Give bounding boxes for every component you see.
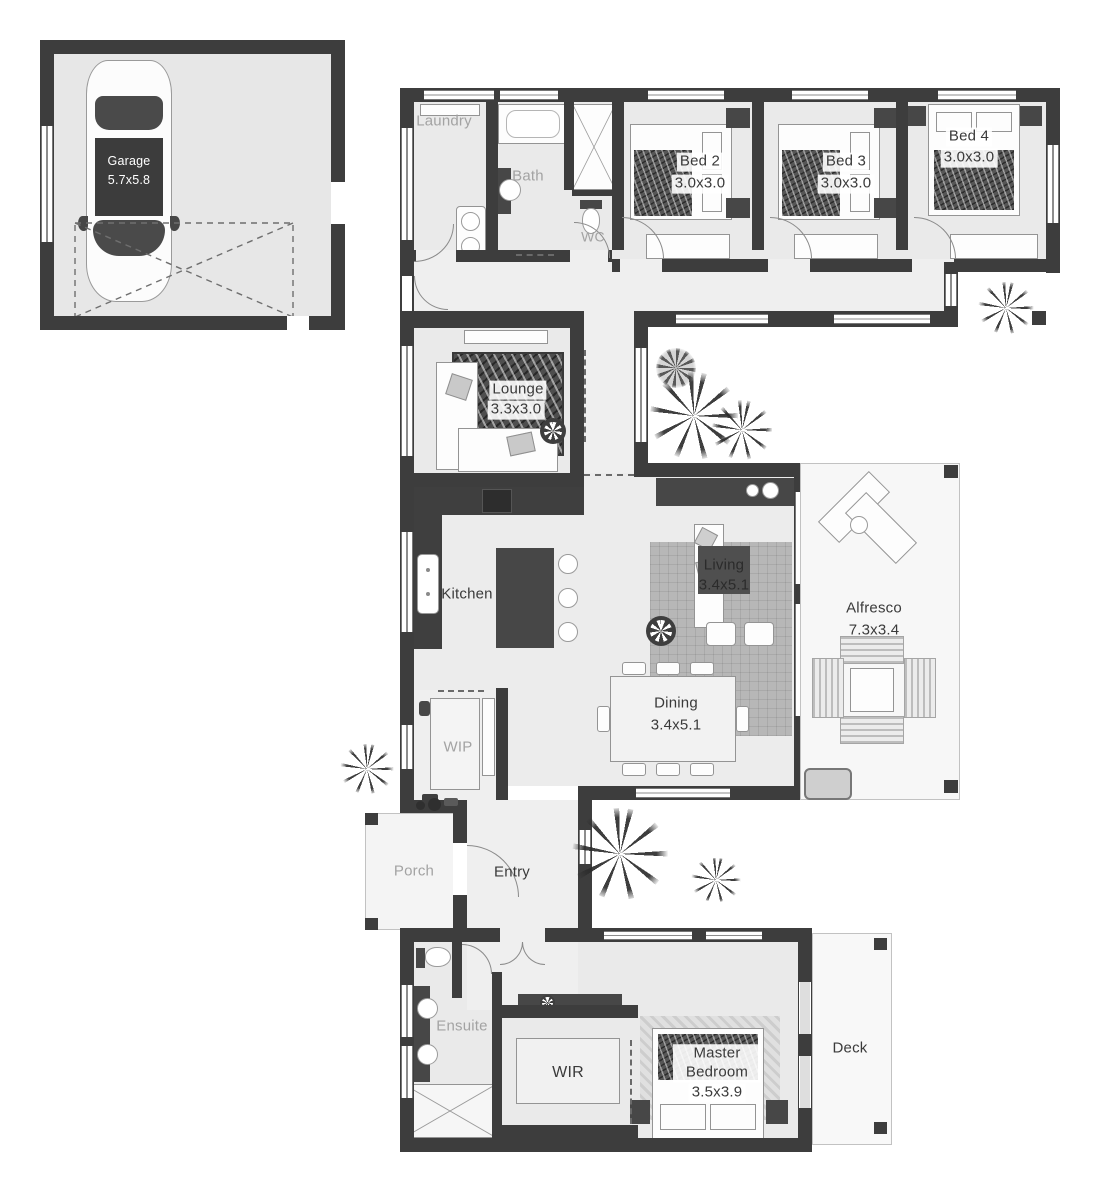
- ensuite-basin-1: [417, 998, 438, 1019]
- courtyard-post: [1032, 311, 1046, 325]
- laundry-label: Laundry: [416, 113, 472, 132]
- dining-chair-bottom-2: [656, 763, 680, 776]
- master-wall-west: [400, 928, 414, 1152]
- living-plant-icon: [646, 616, 676, 646]
- shower-x-icon: [573, 105, 615, 189]
- bed4-window-top: [938, 90, 1016, 100]
- ensuite-label: Ensuite: [436, 1018, 487, 1037]
- bathtub-inner: [506, 110, 560, 138]
- island-stool-2: [558, 588, 578, 608]
- entry-label: Entry: [494, 864, 530, 883]
- dining-chair-bottom-1: [622, 763, 646, 776]
- parking-bay-dashed-outline: [74, 222, 294, 318]
- garage-label: Garage: [108, 154, 151, 170]
- hallway-side-door-opening: [402, 276, 412, 312]
- tractor-trailer: [444, 798, 458, 806]
- ensuite-window-west-2: [401, 1046, 413, 1098]
- alfresco-chair-left: [812, 658, 844, 718]
- dining-chair-top-2: [656, 662, 680, 675]
- alfresco-chair-right: [904, 658, 936, 718]
- alfresco-post-se: [944, 780, 958, 793]
- lounge-kitchen-wall: [400, 473, 584, 487]
- vacuum-icon: [419, 701, 430, 716]
- bed2-door-opening: [620, 259, 662, 272]
- wir-robe-dashed: [630, 1040, 632, 1124]
- master-wall-north-2: [545, 928, 592, 942]
- ensuite-shower: [404, 1084, 496, 1138]
- deck-post-se: [874, 1122, 887, 1134]
- master-wall-south: [400, 1138, 812, 1152]
- ensuite-window-west-1: [401, 985, 413, 1037]
- bed2-bed3-divider: [752, 102, 764, 250]
- master-side-table-2: [766, 1100, 788, 1124]
- laundry-bath-divider: [486, 102, 498, 250]
- palm-plant-icon-east: [978, 282, 1034, 334]
- kitchen-sink-icon: [417, 554, 439, 614]
- porch-post-sw: [365, 918, 378, 930]
- lounge-wall-top: [400, 311, 584, 328]
- lounge-window-left: [401, 346, 413, 456]
- kitchen-island: [496, 548, 554, 648]
- bedrooms-wall-bottom: [612, 259, 1060, 272]
- island-stool-1: [558, 554, 578, 574]
- garage-wall-top: [40, 40, 345, 54]
- tractor-wheel-small: [416, 801, 425, 810]
- palm-plant-icon-courtyard-2: [712, 400, 772, 460]
- toy-tractor-icon: [414, 792, 460, 812]
- bed2-side-table-2: [726, 198, 750, 218]
- kitchen-window-west: [401, 532, 413, 632]
- island-stool-3: [558, 622, 578, 642]
- bed4-side-table-2: [1020, 106, 1042, 126]
- laundry-window-top: [424, 90, 494, 100]
- deck-label: Deck: [833, 1040, 868, 1059]
- tractor-wheel-big: [428, 798, 441, 811]
- ensuite-wc-divider: [452, 942, 462, 998]
- bed3-side-table-1: [874, 108, 898, 128]
- alfresco-post-ne: [944, 465, 958, 478]
- garage-dims: 5.7x5.8: [108, 173, 150, 189]
- passage-floor: [584, 311, 634, 476]
- sink-tap-dot-1: [426, 568, 430, 572]
- tv-unit-decor-1: [746, 484, 759, 497]
- porch-post-nw: [365, 813, 378, 825]
- bed3-dims: 3.0x3.0: [818, 175, 875, 194]
- passage-opening-dashed: [584, 474, 634, 476]
- bath-opening-dashed: [516, 254, 554, 256]
- wc-label: WC: [581, 228, 605, 246]
- deck-sliding-door-1: [799, 982, 811, 1034]
- cooktop-icon: [482, 489, 512, 513]
- ensuite-shower-x-icon: [405, 1085, 495, 1137]
- bath-window-top: [500, 90, 558, 100]
- hallway-window-south-1: [676, 314, 768, 324]
- garage-door-opening: [331, 182, 345, 224]
- alfresco-dims: 7.3x3.4: [849, 622, 900, 641]
- garage-wall-bottom-opening: [287, 316, 309, 330]
- porch-label: Porch: [394, 863, 434, 882]
- bed3-label: Bed 3: [823, 153, 869, 172]
- lounge-label: Lounge: [489, 381, 546, 400]
- living-wall-top: [634, 463, 794, 477]
- tv-unit-decor-2: [762, 482, 779, 499]
- bed4-dims: 3.0x3.0: [941, 149, 998, 168]
- ensuite-hall-divider: [492, 972, 502, 1138]
- washer-drum-icon: [461, 212, 480, 231]
- wir-wall-south: [502, 1125, 638, 1138]
- dining-dims: 3.4x5.1: [651, 717, 702, 736]
- ensuite-basin-2: [417, 1044, 438, 1065]
- master-side-table-1: [630, 1100, 650, 1124]
- front-door-opening: [453, 843, 467, 895]
- dining-chair-top-1: [622, 662, 646, 675]
- bed4-robe: [950, 234, 1038, 259]
- master-label: Master Bedroom: [673, 1044, 761, 1082]
- master-pillow-1: [660, 1104, 706, 1130]
- dining-chair-bottom-3: [690, 763, 714, 776]
- ensuite-cistern: [416, 948, 425, 968]
- passage-window-east: [635, 348, 647, 442]
- bed4-window-right: [1047, 145, 1059, 223]
- floor-plan: Garage 5.7x5.8: [0, 0, 1114, 1200]
- bath-label: Bath: [512, 168, 544, 187]
- alfresco-label: Alfresco: [846, 600, 902, 619]
- bed2-window-top: [648, 90, 724, 100]
- master-pillow-2: [710, 1104, 756, 1130]
- dining-window-south: [636, 788, 730, 798]
- bed2-label: Bed 2: [677, 153, 723, 172]
- dining-chair-left: [597, 706, 610, 732]
- bed3-window-top: [792, 90, 868, 100]
- master-wall-east: [798, 928, 812, 1152]
- laundry-window-left: [401, 128, 413, 240]
- wip-shelf: [482, 698, 495, 776]
- deck-sliding-door-2: [799, 1056, 811, 1108]
- car-rear-window: [95, 96, 163, 130]
- master-wall-north-1: [400, 928, 500, 942]
- living-label: Living: [704, 557, 744, 576]
- bed3-side-table-2: [874, 198, 898, 218]
- bath-shower-divider: [564, 102, 574, 190]
- garage-window-left: [41, 126, 53, 242]
- alfresco-table: [850, 668, 894, 712]
- hallway-window-south-2: [834, 314, 930, 324]
- kitchen-label: Kitchen: [441, 586, 492, 605]
- living-dims: 3.4x5.1: [699, 577, 750, 596]
- dining-chair-top-3: [690, 662, 714, 675]
- living-armchair-1: [706, 622, 736, 646]
- palm-plant-icon-entry-1: [572, 808, 668, 900]
- lounge-console: [464, 330, 548, 344]
- bbq-icon: [804, 768, 852, 800]
- bed3-door-opening: [768, 259, 810, 272]
- wir-wall-north: [502, 1005, 638, 1018]
- deck-post-ne: [874, 938, 887, 950]
- dining-chair-right: [736, 706, 749, 732]
- bed2-dims: 3.0x3.0: [672, 175, 729, 194]
- wip-wall-east: [496, 688, 508, 814]
- lounge-dims: 3.3x3.0: [488, 401, 545, 420]
- dining-label: Dining: [654, 695, 698, 714]
- hallway-end-window: [945, 274, 957, 306]
- lounge-wall-right: [570, 311, 584, 476]
- bed4-label: Bed 4: [946, 128, 992, 147]
- wip-window-west: [401, 725, 413, 769]
- master-window-north-1: [604, 931, 692, 940]
- bed2-side-table-1: [726, 108, 750, 128]
- sink-tap-dot-2: [426, 592, 430, 596]
- palm-plant-icon-entry-2: [690, 858, 742, 902]
- alfresco-side-table: [850, 516, 868, 534]
- master-dims: 3.5x3.9: [689, 1084, 746, 1103]
- master-window-north-2: [706, 931, 762, 940]
- bed3-bed4-divider: [896, 102, 908, 250]
- ensuite-toilet-icon: [425, 947, 451, 967]
- wip-opening-dashed: [438, 690, 484, 692]
- alfresco-chair-bottom: [840, 716, 904, 744]
- lounge-plant-icon: [540, 418, 566, 444]
- lounge-cavity-door-dashed: [584, 350, 586, 442]
- shower-wc-divider: [572, 190, 616, 196]
- wip-label: WIP: [444, 739, 473, 758]
- living-armchair-2: [744, 622, 774, 646]
- shower-bath: [572, 104, 616, 190]
- palm-plant-icon-west: [340, 744, 394, 794]
- wir-label: WIR: [552, 1063, 584, 1083]
